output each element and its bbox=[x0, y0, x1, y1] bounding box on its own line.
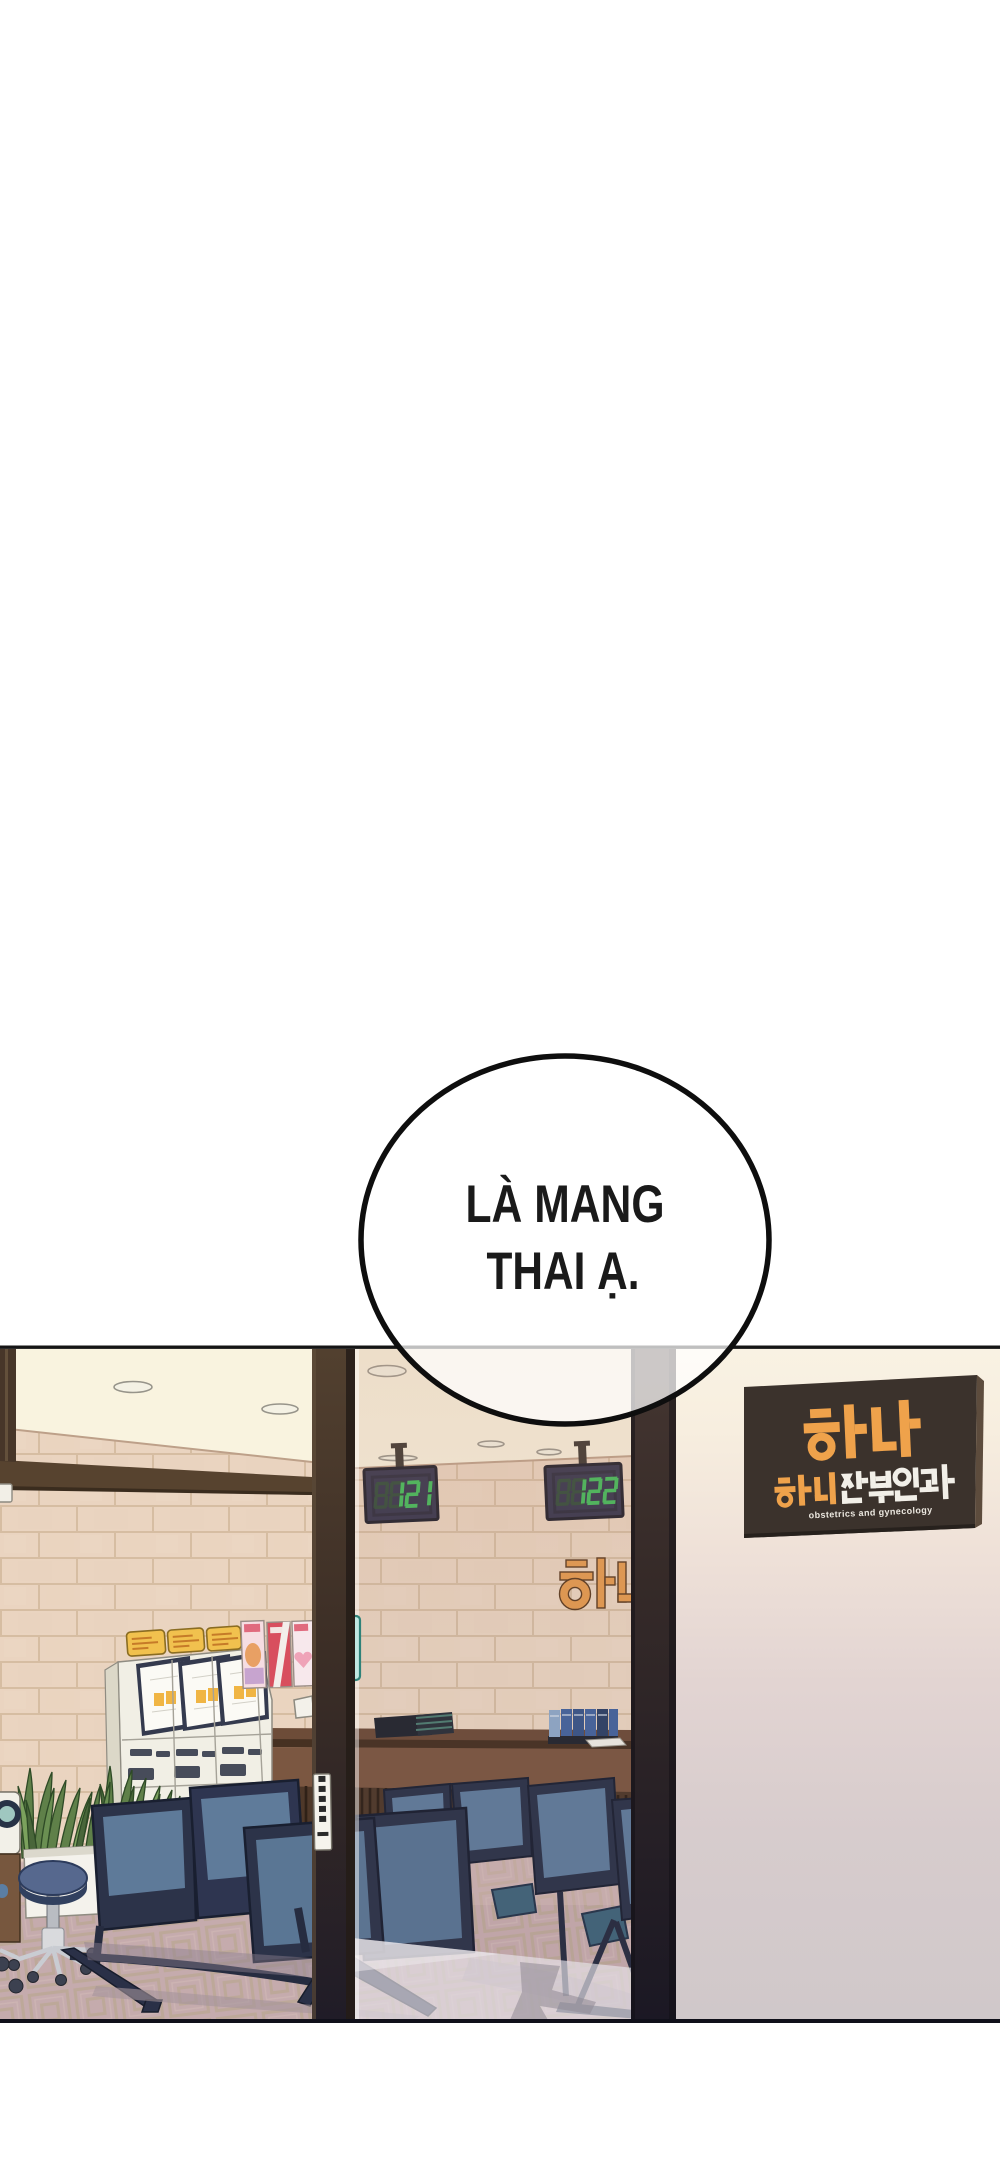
svg-text:LÀ MANG: LÀ MANG bbox=[466, 1174, 665, 1234]
svg-text:THAI Ạ.: THAI Ạ. bbox=[487, 1242, 640, 1301]
